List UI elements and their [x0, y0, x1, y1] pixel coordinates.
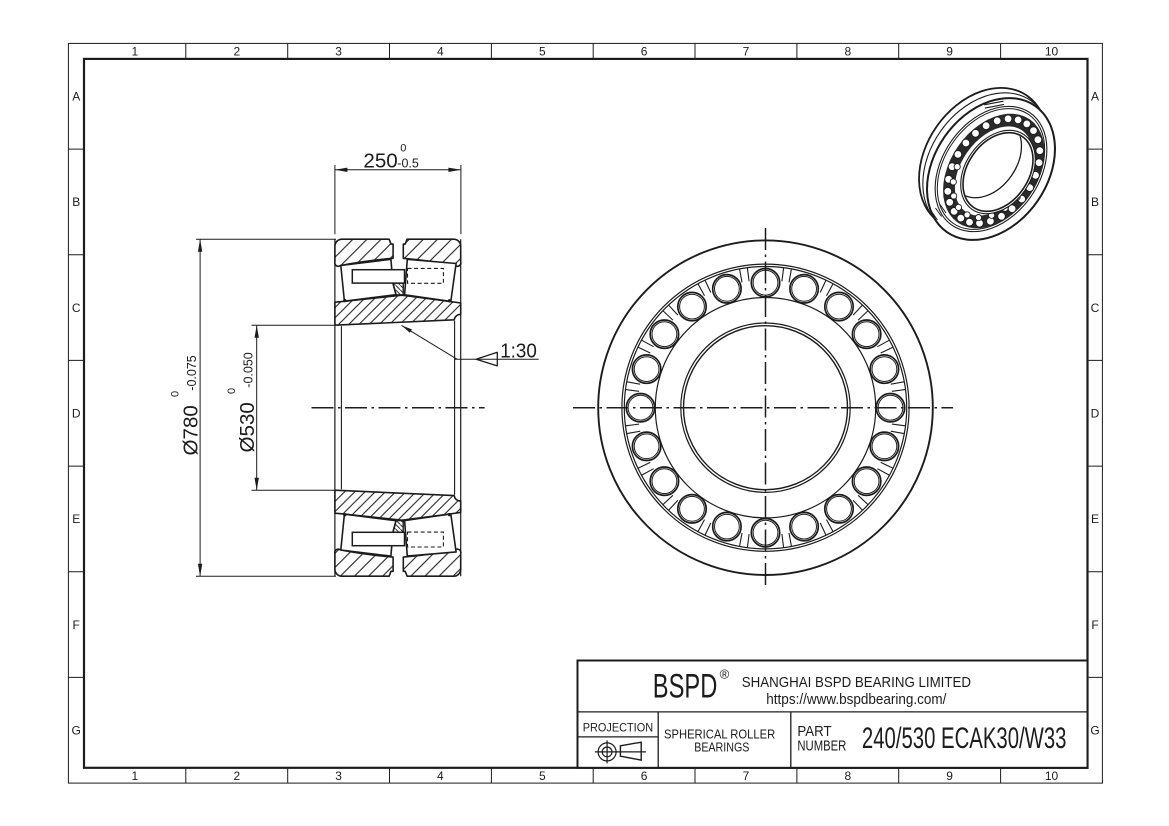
svg-text:SHANGHAI BSPD BEARING LIMITED: SHANGHAI BSPD BEARING LIMITED: [742, 674, 971, 691]
svg-text:F: F: [73, 618, 80, 632]
svg-text:C: C: [72, 301, 81, 315]
svg-text:8: 8: [844, 769, 851, 783]
svg-text:Ø530: Ø530: [236, 402, 259, 452]
svg-text:-0.5: -0.5: [397, 157, 419, 171]
svg-text:E: E: [1091, 512, 1099, 526]
svg-text:3: 3: [335, 44, 342, 58]
svg-text:5: 5: [539, 44, 546, 58]
svg-text:9: 9: [946, 769, 953, 783]
svg-text:1:30: 1:30: [500, 340, 537, 363]
svg-text:PROJECTION: PROJECTION: [583, 723, 653, 735]
svg-text:®: ®: [720, 667, 730, 682]
svg-text:0: 0: [170, 391, 182, 397]
svg-text:G: G: [72, 724, 81, 738]
svg-text:D: D: [72, 406, 81, 420]
svg-text:D: D: [1091, 406, 1100, 420]
svg-text:7: 7: [743, 44, 750, 58]
svg-text:G: G: [1090, 724, 1099, 738]
svg-text:A: A: [72, 89, 80, 103]
svg-text:Ø780: Ø780: [179, 405, 202, 455]
svg-text:6: 6: [641, 44, 648, 58]
svg-text:8: 8: [844, 44, 851, 58]
svg-text:F: F: [1091, 618, 1098, 632]
svg-text:A: A: [1091, 89, 1099, 103]
svg-text:9: 9: [946, 44, 953, 58]
svg-text:4: 4: [437, 769, 444, 783]
svg-text:10: 10: [1045, 769, 1059, 783]
svg-text:0: 0: [226, 388, 238, 394]
svg-text:-0.075: -0.075: [185, 355, 199, 390]
svg-text:BEARINGS: BEARINGS: [694, 739, 749, 754]
svg-text:B: B: [1091, 195, 1099, 209]
svg-text:1: 1: [132, 44, 139, 58]
svg-text:10: 10: [1045, 44, 1059, 58]
svg-text:240/530 ECAK30/W33: 240/530 ECAK30/W33: [862, 722, 1067, 755]
svg-text:0: 0: [400, 143, 406, 155]
svg-text:-0.050: -0.050: [242, 352, 256, 387]
svg-text:5: 5: [539, 769, 546, 783]
svg-text:BSPD: BSPD: [653, 667, 718, 705]
svg-text:7: 7: [743, 769, 750, 783]
svg-text:1: 1: [132, 769, 139, 783]
svg-text:B: B: [72, 195, 80, 209]
svg-text:NUMBER: NUMBER: [797, 737, 846, 754]
svg-text:6: 6: [641, 769, 648, 783]
svg-text:2: 2: [233, 44, 240, 58]
svg-text:2: 2: [233, 769, 240, 783]
svg-text:https://www.bspdbearing.com/: https://www.bspdbearing.com/: [766, 691, 947, 708]
svg-text:3: 3: [335, 769, 342, 783]
svg-text:E: E: [72, 512, 80, 526]
svg-text:C: C: [1091, 301, 1100, 315]
svg-text:4: 4: [437, 44, 444, 58]
svg-text:250: 250: [363, 149, 397, 172]
